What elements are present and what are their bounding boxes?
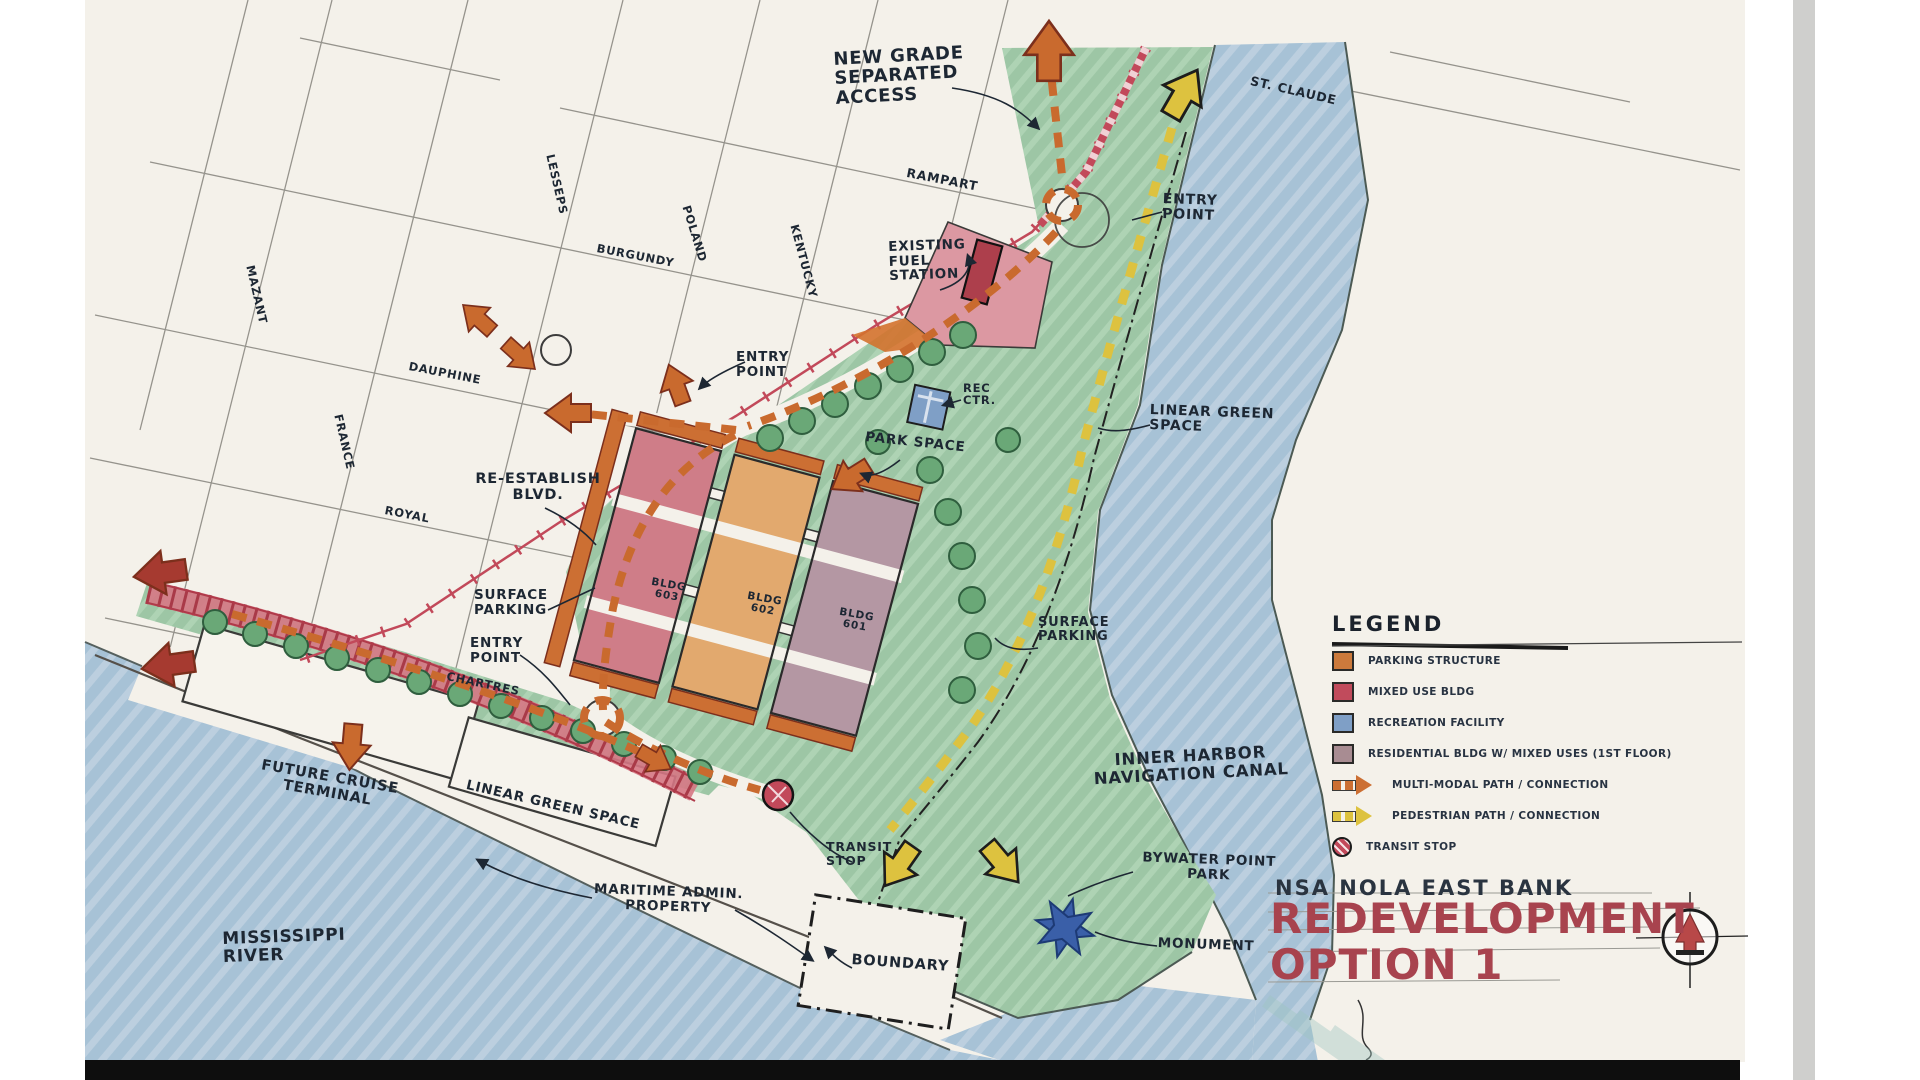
legend-row: MULTI-MODAL PATH / CONNECTION	[1332, 774, 1732, 796]
legend-item-label: RECREATION FACILITY	[1368, 717, 1505, 729]
legend-item-label: MULTI-MODAL PATH / CONNECTION	[1392, 779, 1609, 791]
legend-row: PEDESTRIAN PATH / CONNECTION	[1332, 805, 1732, 827]
legend-item-label: RESIDENTIAL BLDG W/ MIXED USES (1ST FLOO…	[1368, 748, 1672, 760]
redevelopment-plan-scan: NEW GRADE SEPARATED ACCESSRAMPARTST. CLA…	[0, 0, 1920, 1080]
legend-item-label: PEDESTRIAN PATH / CONNECTION	[1392, 810, 1600, 822]
title-block: NSA NOLA EAST BANK REDEVELOPMENT OPTION …	[0, 0, 1920, 1080]
sheet-title-line2: OPTION 1	[1270, 940, 1503, 989]
scan-right-edge	[1793, 0, 1815, 1080]
legend-item-label: MIXED USE BLDG	[1368, 686, 1475, 698]
legend-title: LEGEND	[1332, 612, 1732, 636]
legend: LEGEND PARKING STRUCTURE MIXED USE BLDG …	[1332, 612, 1732, 858]
sheet-title-line1: REDEVELOPMENT	[1270, 894, 1695, 943]
legend-row: MIXED USE BLDG	[1332, 681, 1732, 703]
scan-bottom-edge	[85, 1060, 1740, 1080]
legend-item-label: TRANSIT STOP	[1366, 841, 1457, 853]
legend-row: RESIDENTIAL BLDG W/ MIXED USES (1ST FLOO…	[1332, 743, 1732, 765]
legend-row: RECREATION FACILITY	[1332, 712, 1732, 734]
legend-swatch	[1332, 651, 1354, 671]
legend-arrow-icon	[1332, 775, 1378, 795]
legend-swatch	[1332, 682, 1354, 702]
legend-swatch	[1332, 744, 1354, 764]
legend-row: TRANSIT STOP	[1332, 836, 1732, 858]
legend-row: PARKING STRUCTURE	[1332, 650, 1732, 672]
legend-rows: PARKING STRUCTURE MIXED USE BLDG RECREAT…	[1332, 650, 1732, 858]
legend-item-label: PARKING STRUCTURE	[1368, 655, 1501, 667]
legend-circle-icon	[1332, 837, 1352, 857]
legend-arrow-icon	[1332, 806, 1378, 826]
legend-swatch	[1332, 713, 1354, 733]
